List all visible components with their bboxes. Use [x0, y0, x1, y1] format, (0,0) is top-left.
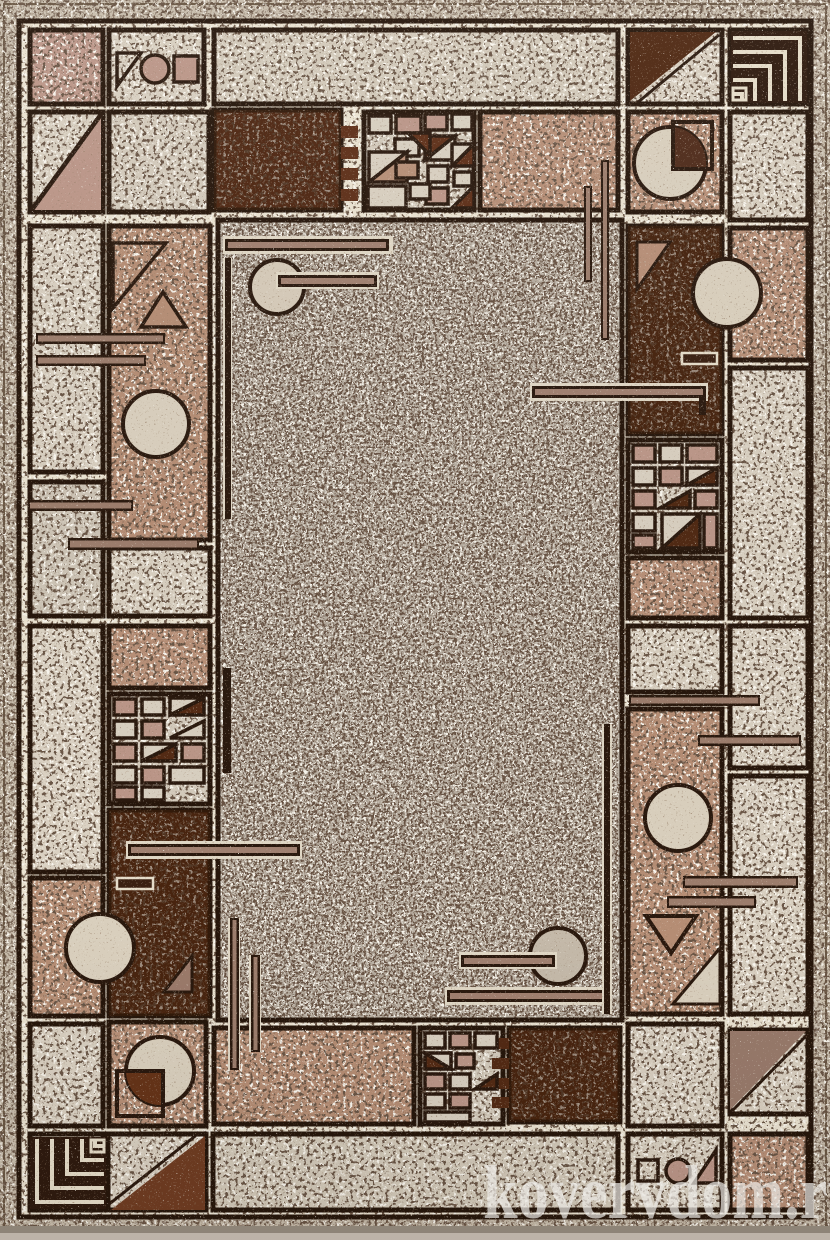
- svg-text:kovervdom.ru: kovervdom.ru: [483, 1151, 830, 1235]
